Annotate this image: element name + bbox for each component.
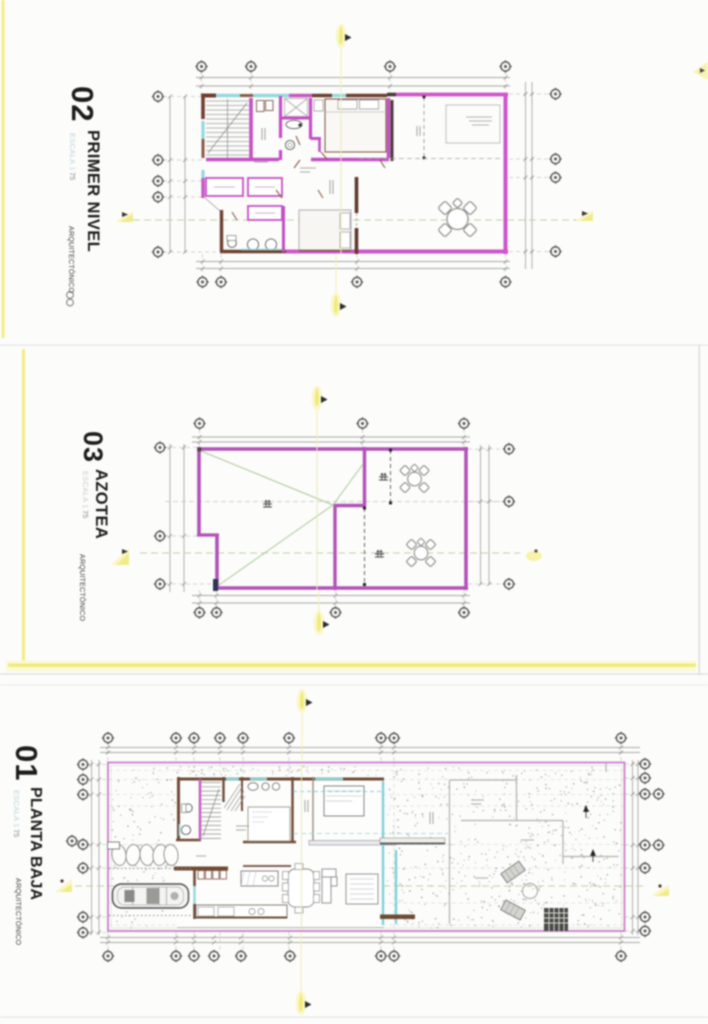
svg-text:75: 75 [68,172,77,180]
svg-text:75: 75 [12,829,21,837]
svg-text:01: 01 [9,745,44,781]
svg-text:ESCALA 1 :: ESCALA 1 : [68,133,77,176]
svg-text:ESCALA 1 :: ESCALA 1 : [12,790,21,833]
svg-text:ARQUITECTÓNICO: ARQUITECTÓNICO [14,878,23,945]
svg-text:02: 02 [65,86,100,122]
svg-text:PRIMER NIVEL: PRIMER NIVEL [84,130,102,252]
svg-text:AZOTEA: AZOTEA [92,469,110,539]
svg-text:PLANTA BAJA: PLANTA BAJA [27,787,44,901]
svg-text:ARQUITECTÓNICO: ARQUITECTÓNICO [67,226,76,293]
svg-text:ARQUITECTÓNICO: ARQUITECTÓNICO [78,554,87,621]
svg-text:75: 75 [81,510,90,518]
svg-text:03: 03 [78,431,108,463]
svg-text:ESCALA 1 :: ESCALA 1 : [81,471,90,514]
